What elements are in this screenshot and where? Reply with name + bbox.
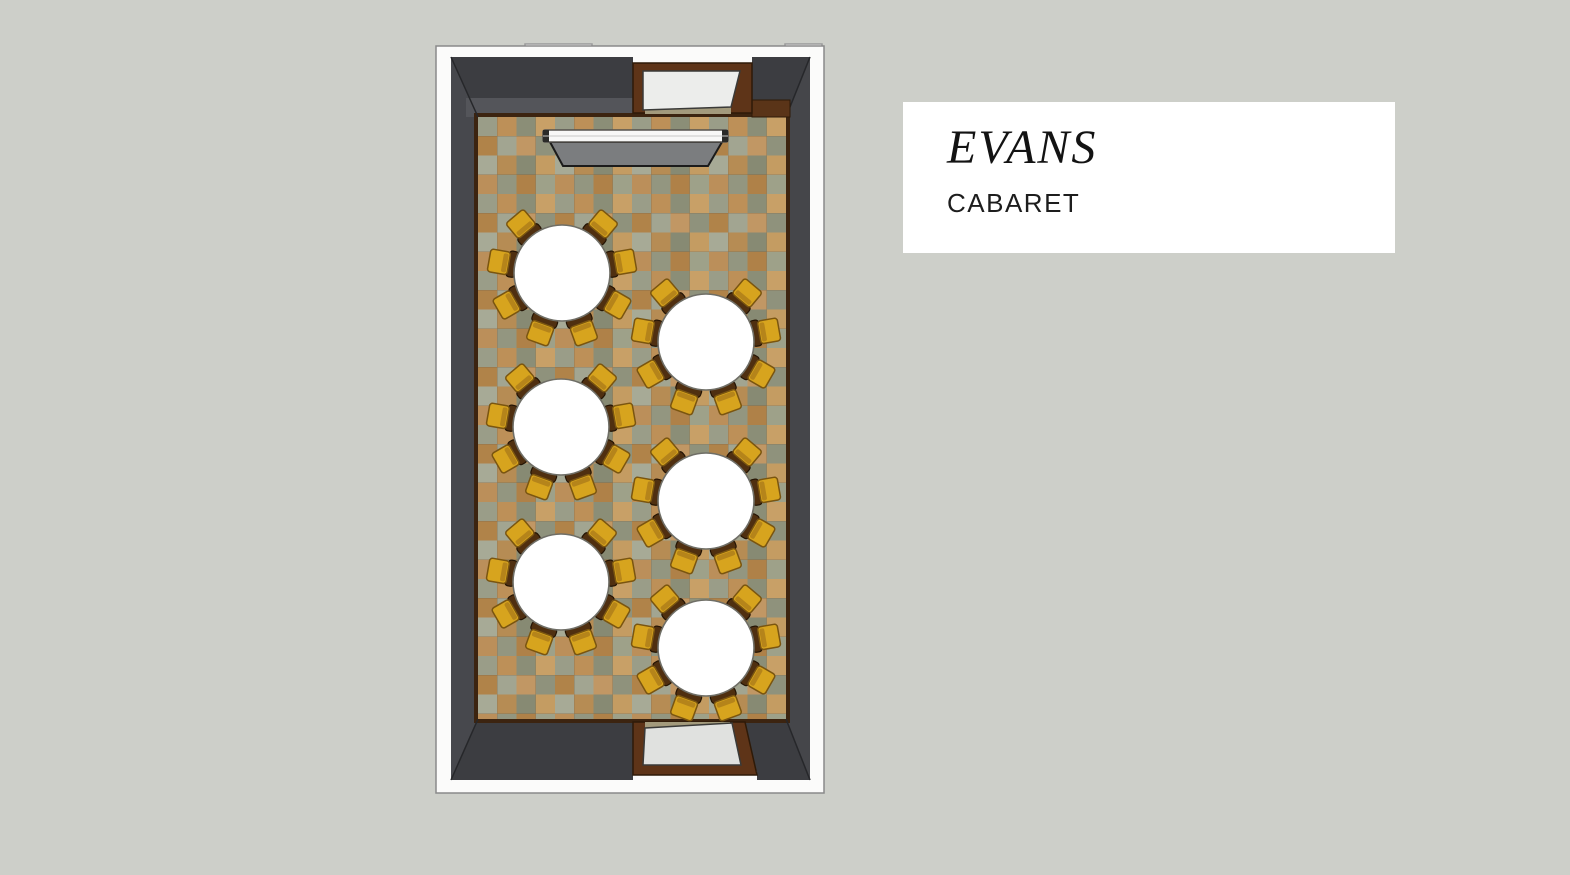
top-door <box>633 47 752 114</box>
label-card: EVANS CABARET <box>903 102 1395 253</box>
bottom-door-leaf <box>643 723 741 765</box>
room-name: EVANS <box>947 124 1097 172</box>
page-background: EVANS CABARET <box>0 0 1570 875</box>
top-door-leaf <box>643 71 740 110</box>
round-table-1 <box>514 225 610 321</box>
round-table-3 <box>513 379 609 475</box>
round-table-4 <box>658 453 754 549</box>
round-table-2 <box>658 294 754 390</box>
bottom-door <box>633 722 757 792</box>
round-table-6 <box>658 600 754 696</box>
door-head-band <box>752 100 790 117</box>
round-table-5 <box>513 534 609 630</box>
layout-name: CABARET <box>947 190 1080 216</box>
projector-screen <box>543 130 728 166</box>
